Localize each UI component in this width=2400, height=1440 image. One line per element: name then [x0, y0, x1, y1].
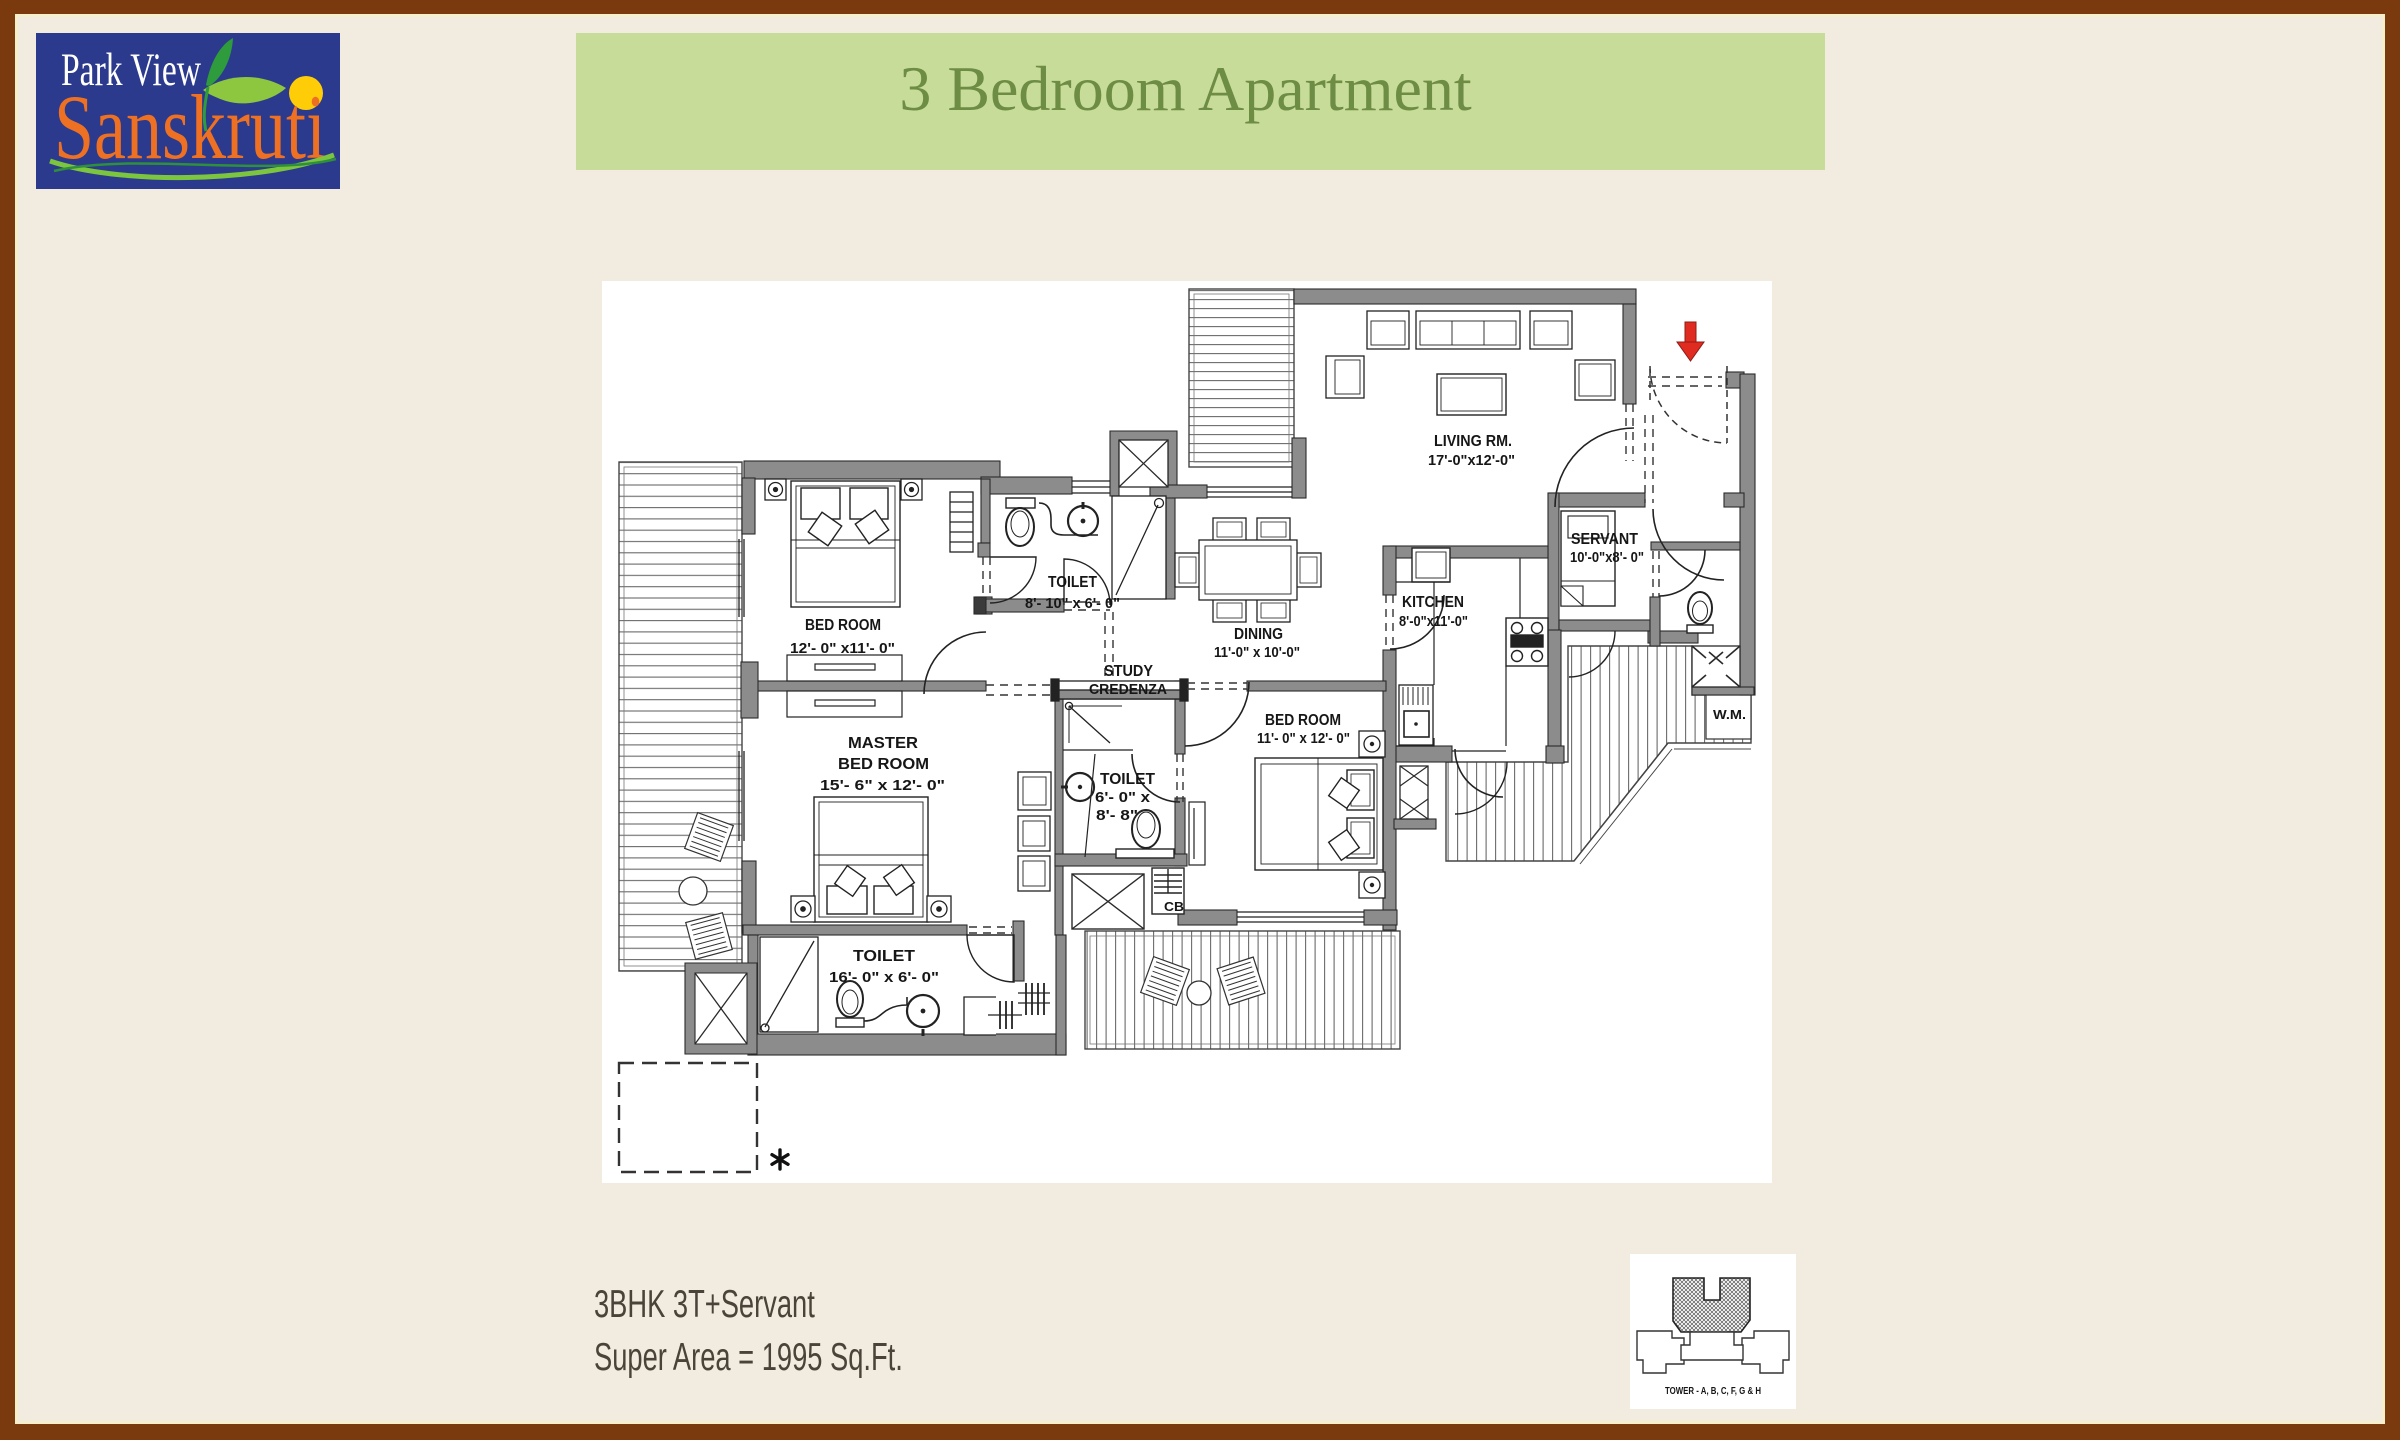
- svg-text:TOILET: TOILET: [853, 948, 915, 965]
- svg-text:TOWER - A, B, C, F, G & H: TOWER - A, B, C, F, G & H: [1665, 1386, 1761, 1397]
- svg-text:CB: CB: [1164, 899, 1184, 914]
- svg-text:6'- 0" x: 6'- 0" x: [1095, 789, 1151, 806]
- svg-text:15'- 6" x 12'- 0": 15'- 6" x 12'- 0": [820, 777, 945, 794]
- svg-text:Sanskruti: Sanskruti: [54, 76, 326, 178]
- svg-text:TOILET: TOILET: [1100, 771, 1155, 788]
- svg-text:8'- 8": 8'- 8": [1096, 807, 1138, 824]
- svg-text:DINING: DINING: [1234, 626, 1283, 643]
- svg-text:8'- 10" x 6'- 0": 8'- 10" x 6'- 0": [1025, 595, 1120, 612]
- svg-text:BED ROOM: BED ROOM: [838, 756, 929, 773]
- svg-text:LIVING RM.: LIVING RM.: [1434, 433, 1512, 450]
- svg-text:11'-0" x 10'-0": 11'-0" x 10'-0": [1214, 644, 1300, 661]
- svg-text:KITCHEN: KITCHEN: [1402, 594, 1464, 611]
- svg-text:BED ROOM: BED ROOM: [1265, 712, 1341, 729]
- svg-text:10'-0"x8'- 0": 10'-0"x8'- 0": [1570, 549, 1644, 566]
- svg-text:11'- 0" x 12'- 0": 11'- 0" x 12'- 0": [1257, 730, 1350, 747]
- svg-text:STUDY: STUDY: [1104, 663, 1153, 680]
- svg-text:BED ROOM: BED ROOM: [805, 617, 881, 634]
- svg-text:TOILET: TOILET: [1048, 574, 1097, 591]
- svg-text:8'-0"x11'-0": 8'-0"x11'-0": [1399, 613, 1468, 630]
- svg-text:SERVANT: SERVANT: [1571, 531, 1638, 548]
- svg-text:12'- 0" x11'- 0": 12'- 0" x11'- 0": [790, 640, 895, 657]
- svg-text:W.M.: W.M.: [1713, 707, 1746, 722]
- svg-text:16'- 0" x 6'- 0": 16'- 0" x 6'- 0": [829, 969, 939, 986]
- svg-text:CREDENZA: CREDENZA: [1089, 681, 1167, 698]
- svg-text:MASTER: MASTER: [848, 735, 918, 752]
- svg-text:17'-0"x12'-0": 17'-0"x12'-0": [1428, 452, 1515, 469]
